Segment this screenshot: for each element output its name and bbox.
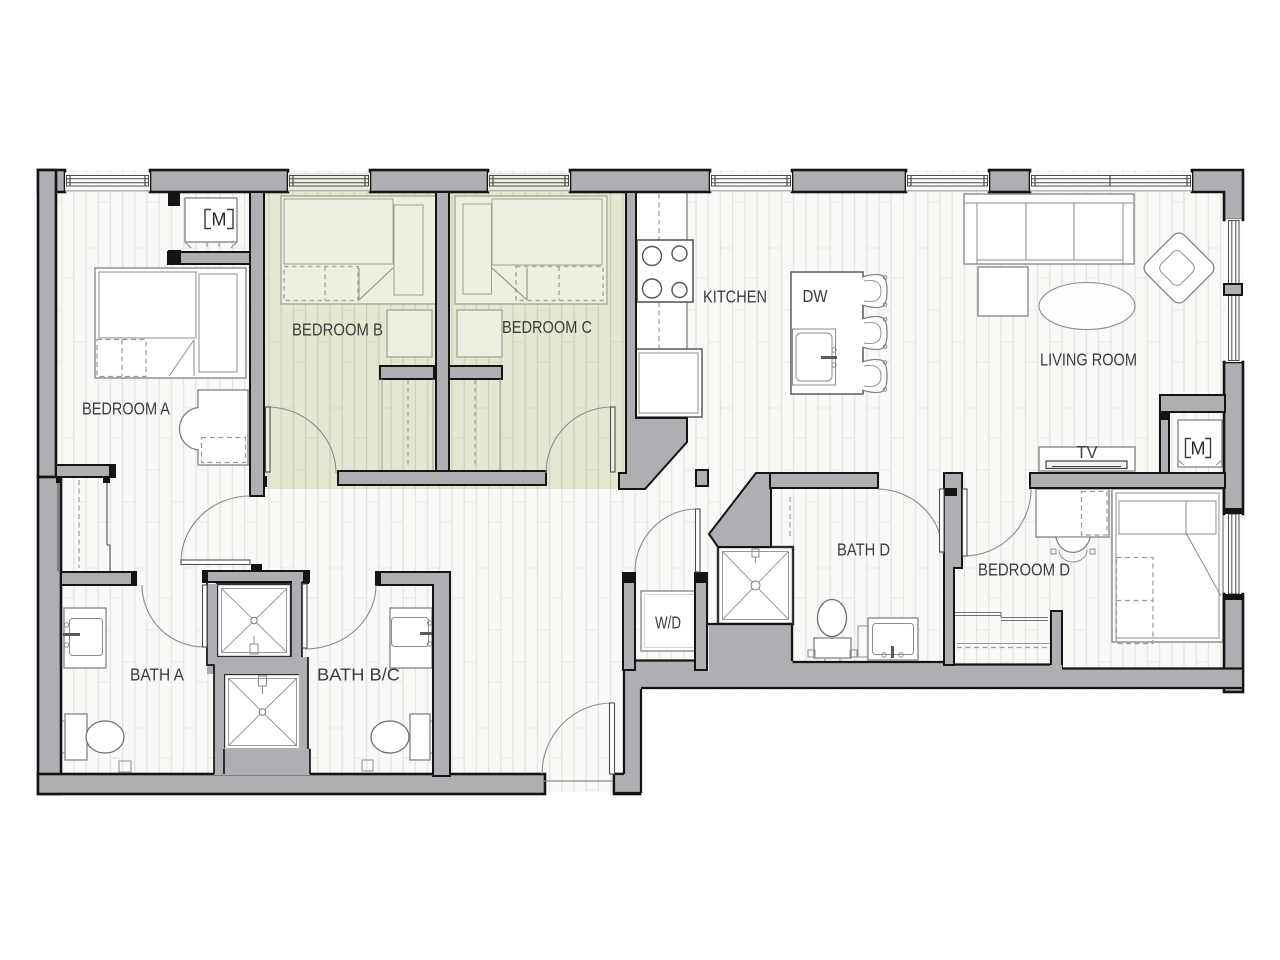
svg-text:BEDROOM B: BEDROOM B [292,320,383,340]
svg-text:BEDROOM A: BEDROOM A [82,399,170,419]
svg-text:TV: TV [1077,442,1098,462]
svg-text:KITCHEN: KITCHEN [703,287,767,307]
svg-text:BEDROOM C: BEDROOM C [502,317,592,337]
svg-text:DW: DW [803,286,828,306]
svg-text:BATH D: BATH D [837,540,890,560]
svg-text:BATH A: BATH A [130,665,184,685]
svg-text:M: M [212,210,227,230]
svg-text:M: M [1191,439,1206,459]
svg-text:BATH B/C: BATH B/C [317,665,400,685]
svg-text:BEDROOM D: BEDROOM D [978,560,1070,580]
svg-text:W/D: W/D [655,613,681,633]
svg-text:LIVING ROOM: LIVING ROOM [1040,350,1137,370]
